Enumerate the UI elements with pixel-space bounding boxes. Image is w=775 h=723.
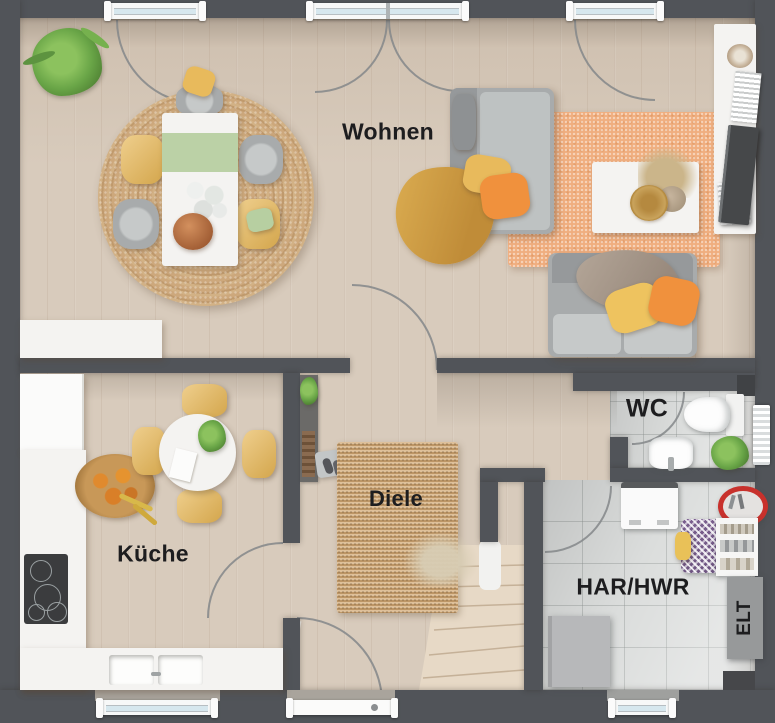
- har-door-arc: [545, 486, 611, 552]
- wc-faucet: [668, 457, 674, 471]
- har-niche: [723, 671, 755, 690]
- washer-vent: [657, 520, 669, 525]
- copper-vase: [173, 213, 213, 250]
- terrace-door-arc: [575, 20, 655, 100]
- wall-living-hall-right: [437, 358, 755, 373]
- gray-pillow: [452, 94, 476, 150]
- console-plant: [300, 377, 318, 405]
- table-plant: [198, 420, 226, 452]
- wall-kitchen-upper: [283, 373, 300, 543]
- french-door: [311, 3, 464, 19]
- window-glass: [114, 8, 196, 15]
- window-glass: [618, 705, 666, 712]
- burner: [47, 602, 67, 622]
- tool: [728, 495, 735, 510]
- kitchen-chair-bottom: [177, 489, 222, 523]
- room-label-elt: ELT: [734, 600, 756, 635]
- fridge: [20, 374, 84, 450]
- decor-tray: [630, 185, 668, 221]
- kitchen-chair-top: [182, 384, 227, 417]
- wall-wc-left: [610, 437, 628, 468]
- book-stack: [730, 71, 761, 123]
- table-runner: [162, 133, 238, 172]
- wall-har-top-right: [610, 468, 755, 482]
- utility-shelf: [716, 518, 758, 576]
- wc-shaft-niche: [737, 375, 755, 396]
- kitchen-door-arc: [208, 543, 283, 618]
- stair-rail: [479, 540, 501, 590]
- sink-basin: [158, 655, 203, 685]
- woven-bowl: [727, 44, 753, 68]
- window-glass: [576, 8, 654, 15]
- burner: [28, 604, 45, 621]
- faucet: [151, 672, 161, 676]
- kitchen-window: [101, 700, 213, 715]
- room-label-har-hwr: HAR/HWR: [576, 574, 689, 601]
- har-appliance: [548, 616, 610, 687]
- room-label-wohnen: Wohnen: [342, 119, 434, 146]
- washer-lid-seam: [621, 482, 678, 488]
- wall-wc-top: [573, 373, 755, 391]
- dining-chair-left-lower: [113, 199, 159, 249]
- dining-chair-left-upper: [121, 135, 164, 184]
- wall-kitchen-lower: [283, 618, 300, 690]
- washer-vent: [629, 520, 641, 525]
- wall-left: [0, 0, 20, 723]
- har-window: [613, 700, 671, 715]
- shelf-items: [720, 558, 754, 570]
- shelf-items: [720, 524, 754, 534]
- wc-sink: [649, 437, 693, 469]
- room-label-kueche: Küche: [117, 541, 189, 568]
- french-door-mullion: [386, 3, 390, 19]
- living-hall-door-arc: [352, 285, 437, 370]
- entry-door-handle: [371, 704, 378, 711]
- dried-plant: [404, 532, 478, 586]
- sink-basin: [109, 655, 154, 685]
- entry-door: [291, 700, 393, 715]
- console-books: [302, 431, 315, 477]
- kitchen-table: [159, 414, 236, 491]
- wall-stair-stub: [480, 482, 498, 542]
- living-lowboard: [20, 320, 162, 358]
- wall-living-hall-left: [20, 358, 350, 373]
- wall-har-left: [524, 482, 543, 690]
- shelf-items: [720, 540, 754, 552]
- french-door-arc-right: [389, 20, 460, 91]
- hall-rug: [337, 442, 458, 613]
- wc-plant: [711, 436, 749, 470]
- yellow-laundry: [675, 532, 691, 560]
- room-label-diele: Diele: [369, 486, 423, 512]
- terrace-door: [571, 3, 659, 19]
- kitchen-sink: [105, 652, 210, 689]
- wall-har-top-left: [480, 468, 545, 482]
- kitchen-chair-right: [242, 430, 276, 478]
- dining-chair-right-upper: [239, 135, 283, 184]
- room-label-wc: WC: [626, 395, 668, 424]
- living-window-left: [109, 3, 201, 19]
- floorplan: Wohnen Küche Diele WC HAR/HWR ELT: [0, 0, 775, 723]
- window-glass: [106, 705, 208, 712]
- palm-plant: [26, 24, 108, 102]
- toilet-bowl: [684, 397, 730, 432]
- washing-machine: [621, 482, 678, 529]
- tool: [737, 494, 744, 510]
- burner: [30, 560, 52, 582]
- french-door-arc-left: [315, 20, 387, 92]
- orange-pillow-chaise: [478, 171, 532, 221]
- cooktop: [24, 554, 68, 624]
- wc-radiator: [753, 405, 770, 465]
